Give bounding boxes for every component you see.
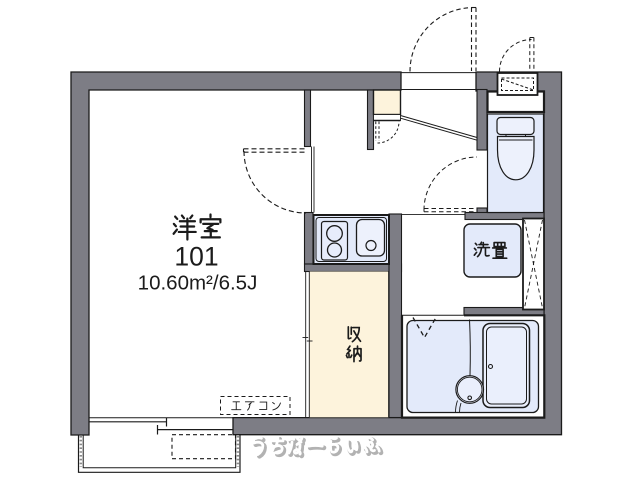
svg-text:10.60m²/6.5J: 10.60m²/6.5J	[138, 272, 258, 295]
svg-text:101: 101	[174, 242, 218, 272]
